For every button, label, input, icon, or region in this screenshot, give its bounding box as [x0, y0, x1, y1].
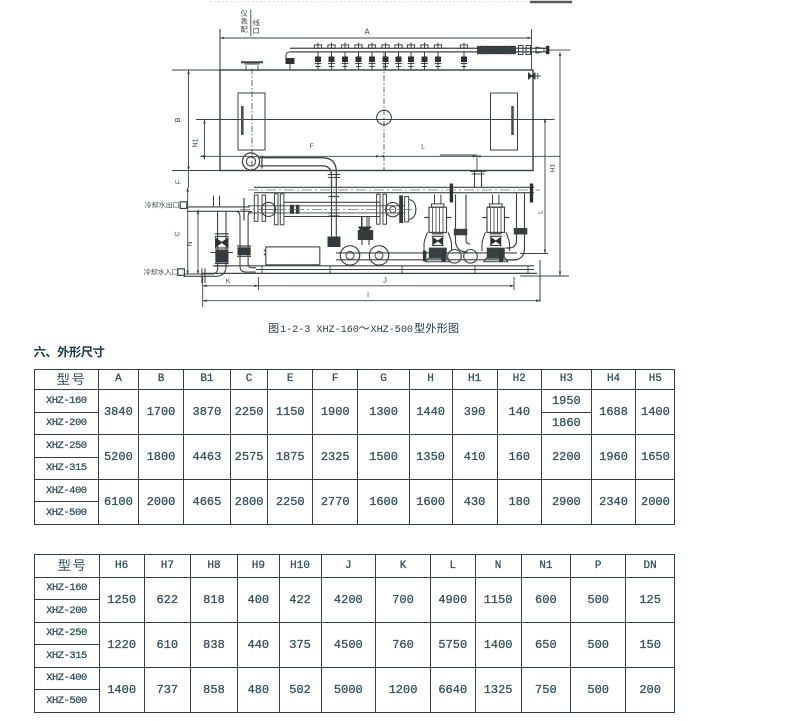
svg-text:1-2-3 XHZ-160: 1-2-3 XHZ-160 — [280, 325, 359, 336]
svg-text:XHZ-500: XHZ-500 — [371, 325, 413, 336]
